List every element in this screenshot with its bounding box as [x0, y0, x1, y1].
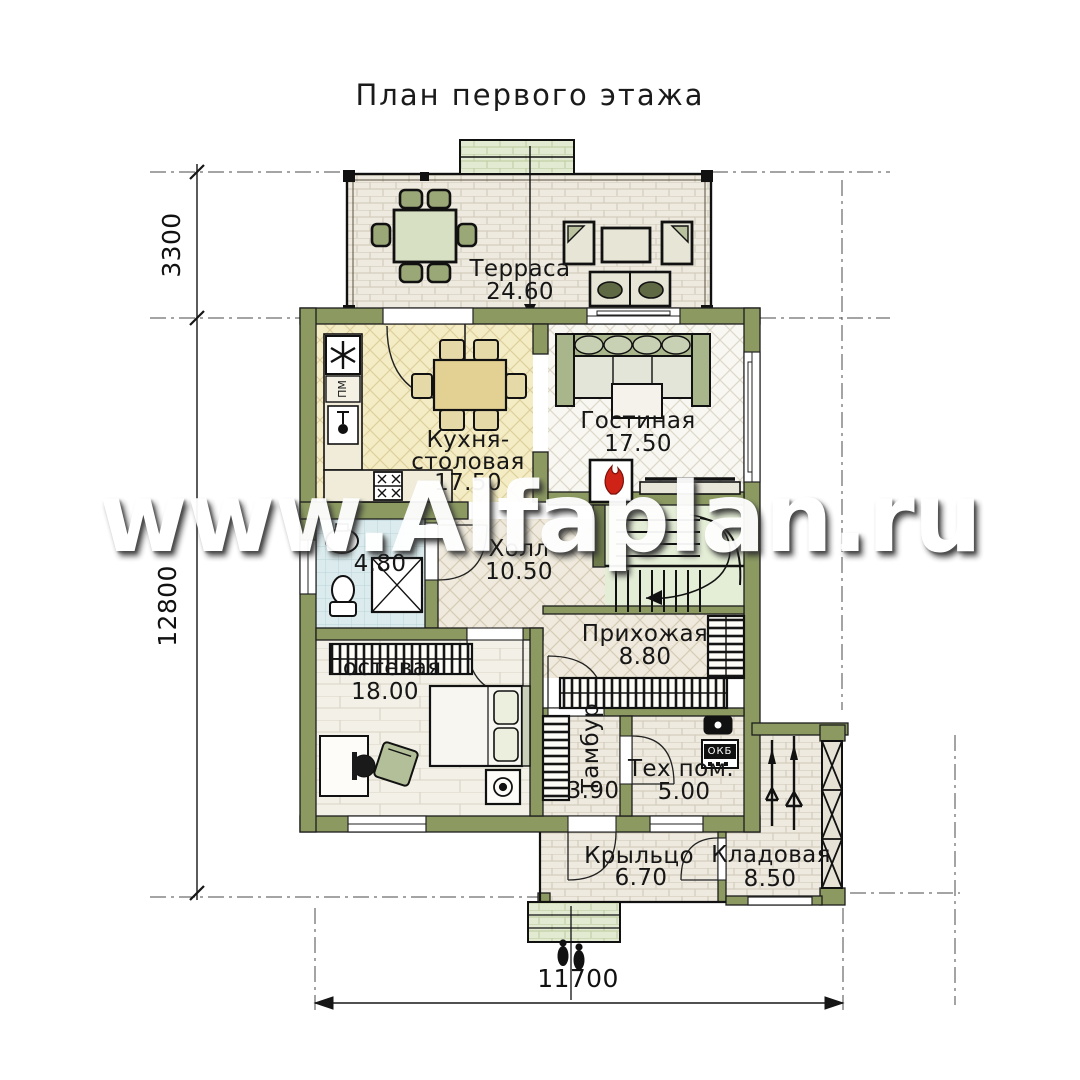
living-area: 17.50 [558, 433, 718, 455]
storage-window [748, 897, 812, 905]
terrace-label: Терраса [440, 258, 600, 280]
tech-area: 5.00 [614, 781, 754, 803]
desk [320, 736, 375, 796]
storage-label: Кладовая [701, 844, 841, 866]
nightstand [486, 770, 520, 804]
page-title: План первого этажа [300, 84, 760, 106]
toilet [330, 576, 356, 616]
boiler-label: ОКБ [704, 744, 736, 759]
tech-label: Тех пом. [611, 758, 751, 780]
tech-window [650, 816, 703, 832]
terrace-area: 24.60 [440, 281, 600, 303]
guest-window [348, 816, 426, 832]
dim-terrace-depth: 3300 [161, 195, 187, 295]
living-label: Гостиная [558, 410, 718, 432]
guest-area: 18.00 [305, 681, 465, 703]
dishwasher-label: ПМ [336, 359, 350, 419]
watermark: www.Alfaplan.ru [0, 466, 1080, 570]
porch-label: Крыльцо [569, 845, 709, 867]
dim-total-width: 11700 [478, 968, 678, 990]
porch-area: 6.70 [571, 867, 711, 889]
floor-plan-page: План первого этажа Терраса 24.60 Кухня-с… [0, 0, 1080, 1080]
entry-label: Прихожая [565, 623, 725, 645]
storage-area: 8.50 [700, 868, 840, 890]
living-north-window [587, 308, 680, 324]
entry-area: 8.80 [565, 646, 725, 668]
guest-label: Гостевая [305, 657, 465, 679]
